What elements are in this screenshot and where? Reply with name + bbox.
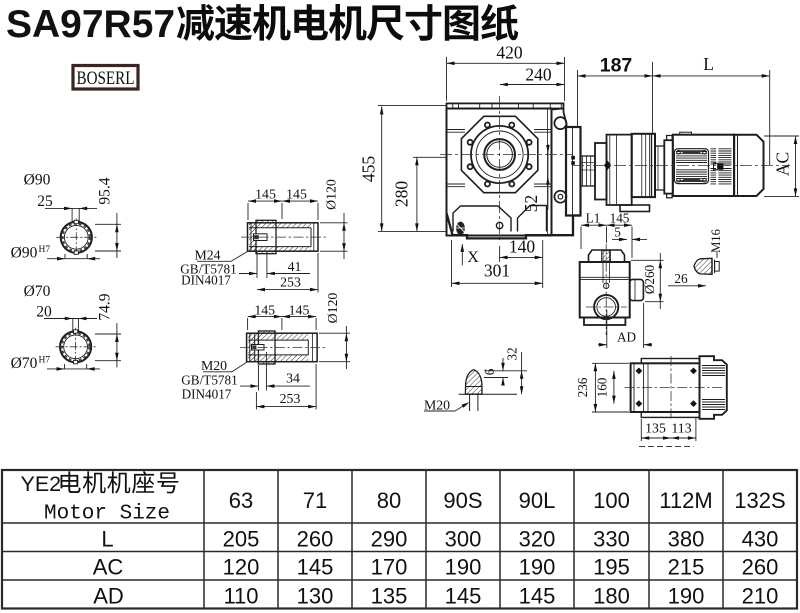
svg-text:187: 187 (600, 55, 633, 77)
svg-text:100: 100 (593, 488, 630, 513)
svg-text:SA97R57: SA97R57 (6, 3, 175, 46)
svg-text:455: 455 (359, 156, 379, 183)
svg-text:301: 301 (484, 261, 510, 281)
svg-text:132S: 132S (734, 488, 785, 513)
svg-text:253: 253 (280, 391, 301, 406)
svg-text:74.9: 74.9 (97, 293, 114, 320)
svg-text:120: 120 (223, 555, 260, 580)
svg-text:80: 80 (377, 488, 401, 513)
svg-text:X: X (467, 249, 479, 266)
svg-text:160: 160 (595, 377, 610, 397)
svg-text:195: 195 (593, 555, 630, 580)
svg-text:320: 320 (519, 527, 556, 552)
svg-text:236: 236 (575, 377, 590, 397)
svg-text:260: 260 (742, 555, 779, 580)
svg-text:DIN4017: DIN4017 (181, 273, 231, 288)
svg-text:190: 190 (445, 555, 482, 580)
svg-text:253: 253 (280, 275, 301, 290)
svg-text:112M: 112M (659, 488, 712, 513)
svg-text:H7: H7 (39, 356, 51, 366)
svg-text:AD: AD (93, 584, 124, 609)
svg-text:52: 52 (521, 195, 541, 213)
svg-text:145: 145 (254, 303, 275, 318)
svg-text:71: 71 (303, 488, 327, 513)
svg-text:Motor Size: Motor Size (44, 503, 170, 526)
svg-text:110: 110 (223, 584, 258, 609)
svg-text:AD: AD (617, 330, 636, 345)
svg-text:145: 145 (610, 211, 630, 226)
svg-text:145: 145 (255, 187, 276, 202)
svg-text:26: 26 (674, 271, 688, 286)
svg-text:Ø90: Ø90 (11, 245, 38, 262)
svg-text:135: 135 (645, 421, 666, 436)
svg-text:Ø120: Ø120 (325, 293, 340, 324)
svg-text:YE2: YE2 (21, 472, 62, 496)
svg-text:240: 240 (525, 65, 552, 85)
svg-text:330: 330 (593, 527, 630, 552)
svg-text:34: 34 (286, 371, 300, 386)
svg-text:260: 260 (297, 527, 334, 552)
svg-text:Ø120: Ø120 (324, 179, 339, 210)
svg-text:380: 380 (668, 527, 705, 552)
svg-text:L: L (101, 527, 113, 552)
svg-text:95.4: 95.4 (97, 177, 114, 204)
svg-text:6: 6 (482, 368, 497, 375)
svg-text:M16: M16 (709, 229, 723, 253)
svg-text:135: 135 (371, 584, 408, 609)
svg-text:145: 145 (297, 555, 334, 580)
svg-text:180: 180 (593, 584, 630, 609)
svg-text:5: 5 (614, 225, 621, 240)
svg-text:Ø70: Ø70 (24, 283, 51, 300)
svg-text:M24: M24 (194, 248, 220, 263)
svg-text:AC: AC (773, 152, 793, 176)
svg-text:90L: 90L (519, 488, 556, 513)
svg-text:300: 300 (445, 527, 482, 552)
svg-text:63: 63 (229, 488, 253, 513)
svg-text:M20: M20 (201, 358, 227, 373)
svg-text:GB/T5781: GB/T5781 (181, 373, 237, 388)
svg-text:M20: M20 (424, 398, 450, 413)
svg-text:190: 190 (519, 555, 556, 580)
svg-text:41: 41 (288, 259, 302, 274)
svg-text:L1: L1 (586, 211, 601, 226)
svg-text:140: 140 (509, 237, 536, 257)
svg-text:BOSERL: BOSERL (77, 68, 135, 89)
svg-text:20: 20 (36, 304, 52, 321)
svg-text:170: 170 (371, 555, 408, 580)
svg-text:290: 290 (371, 527, 408, 552)
svg-text:L: L (703, 54, 714, 74)
svg-text:280: 280 (392, 181, 412, 208)
svg-text:AC: AC (93, 555, 124, 580)
svg-text:145: 145 (519, 584, 556, 609)
svg-text:145: 145 (286, 187, 307, 202)
svg-text:32: 32 (505, 347, 520, 360)
svg-text:DIN4017: DIN4017 (182, 387, 232, 402)
svg-text:H7: H7 (39, 245, 51, 255)
svg-text:430: 430 (742, 527, 779, 552)
svg-text:205: 205 (223, 527, 260, 552)
svg-text:420: 420 (496, 43, 523, 63)
svg-text:215: 215 (668, 555, 705, 580)
svg-text:130: 130 (297, 584, 334, 609)
svg-text:145: 145 (289, 303, 310, 318)
svg-text:25: 25 (37, 193, 53, 210)
svg-text:Ø260: Ø260 (642, 264, 657, 294)
svg-text:Ø70: Ø70 (11, 355, 38, 372)
svg-text:145: 145 (445, 584, 482, 609)
svg-text:190: 190 (668, 584, 705, 609)
svg-text:Ø90: Ø90 (24, 172, 51, 189)
svg-text:113: 113 (671, 421, 691, 436)
svg-text:210: 210 (742, 584, 779, 609)
svg-text:90S: 90S (443, 488, 482, 513)
